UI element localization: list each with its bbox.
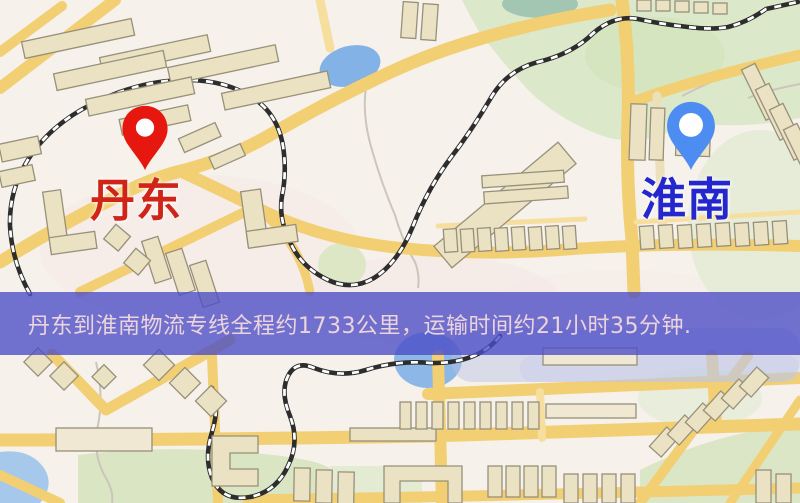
red-location-pin-icon: [119, 105, 171, 171]
destination-marker[interactable]: [662, 101, 720, 171]
origin-marker[interactable]: [119, 105, 171, 171]
map-canvas[interactable]: [0, 0, 800, 503]
route-info-banner: 丹东到淮南物流专线全程约1733公里，运输时间约21小时35分钟.: [0, 292, 800, 355]
blue-location-pin-icon: [662, 101, 720, 171]
route-info-text: 丹东到淮南物流专线全程约1733公里，运输时间约21小时35分钟.: [28, 308, 691, 340]
destination-city-label: 淮南: [641, 177, 733, 222]
origin-city-label: 丹东: [90, 178, 182, 223]
logistics-route-map: 丹东 淮南 丹东到淮南物流专线全程约1733公里，运输时间约21小时35分钟.: [0, 0, 800, 503]
